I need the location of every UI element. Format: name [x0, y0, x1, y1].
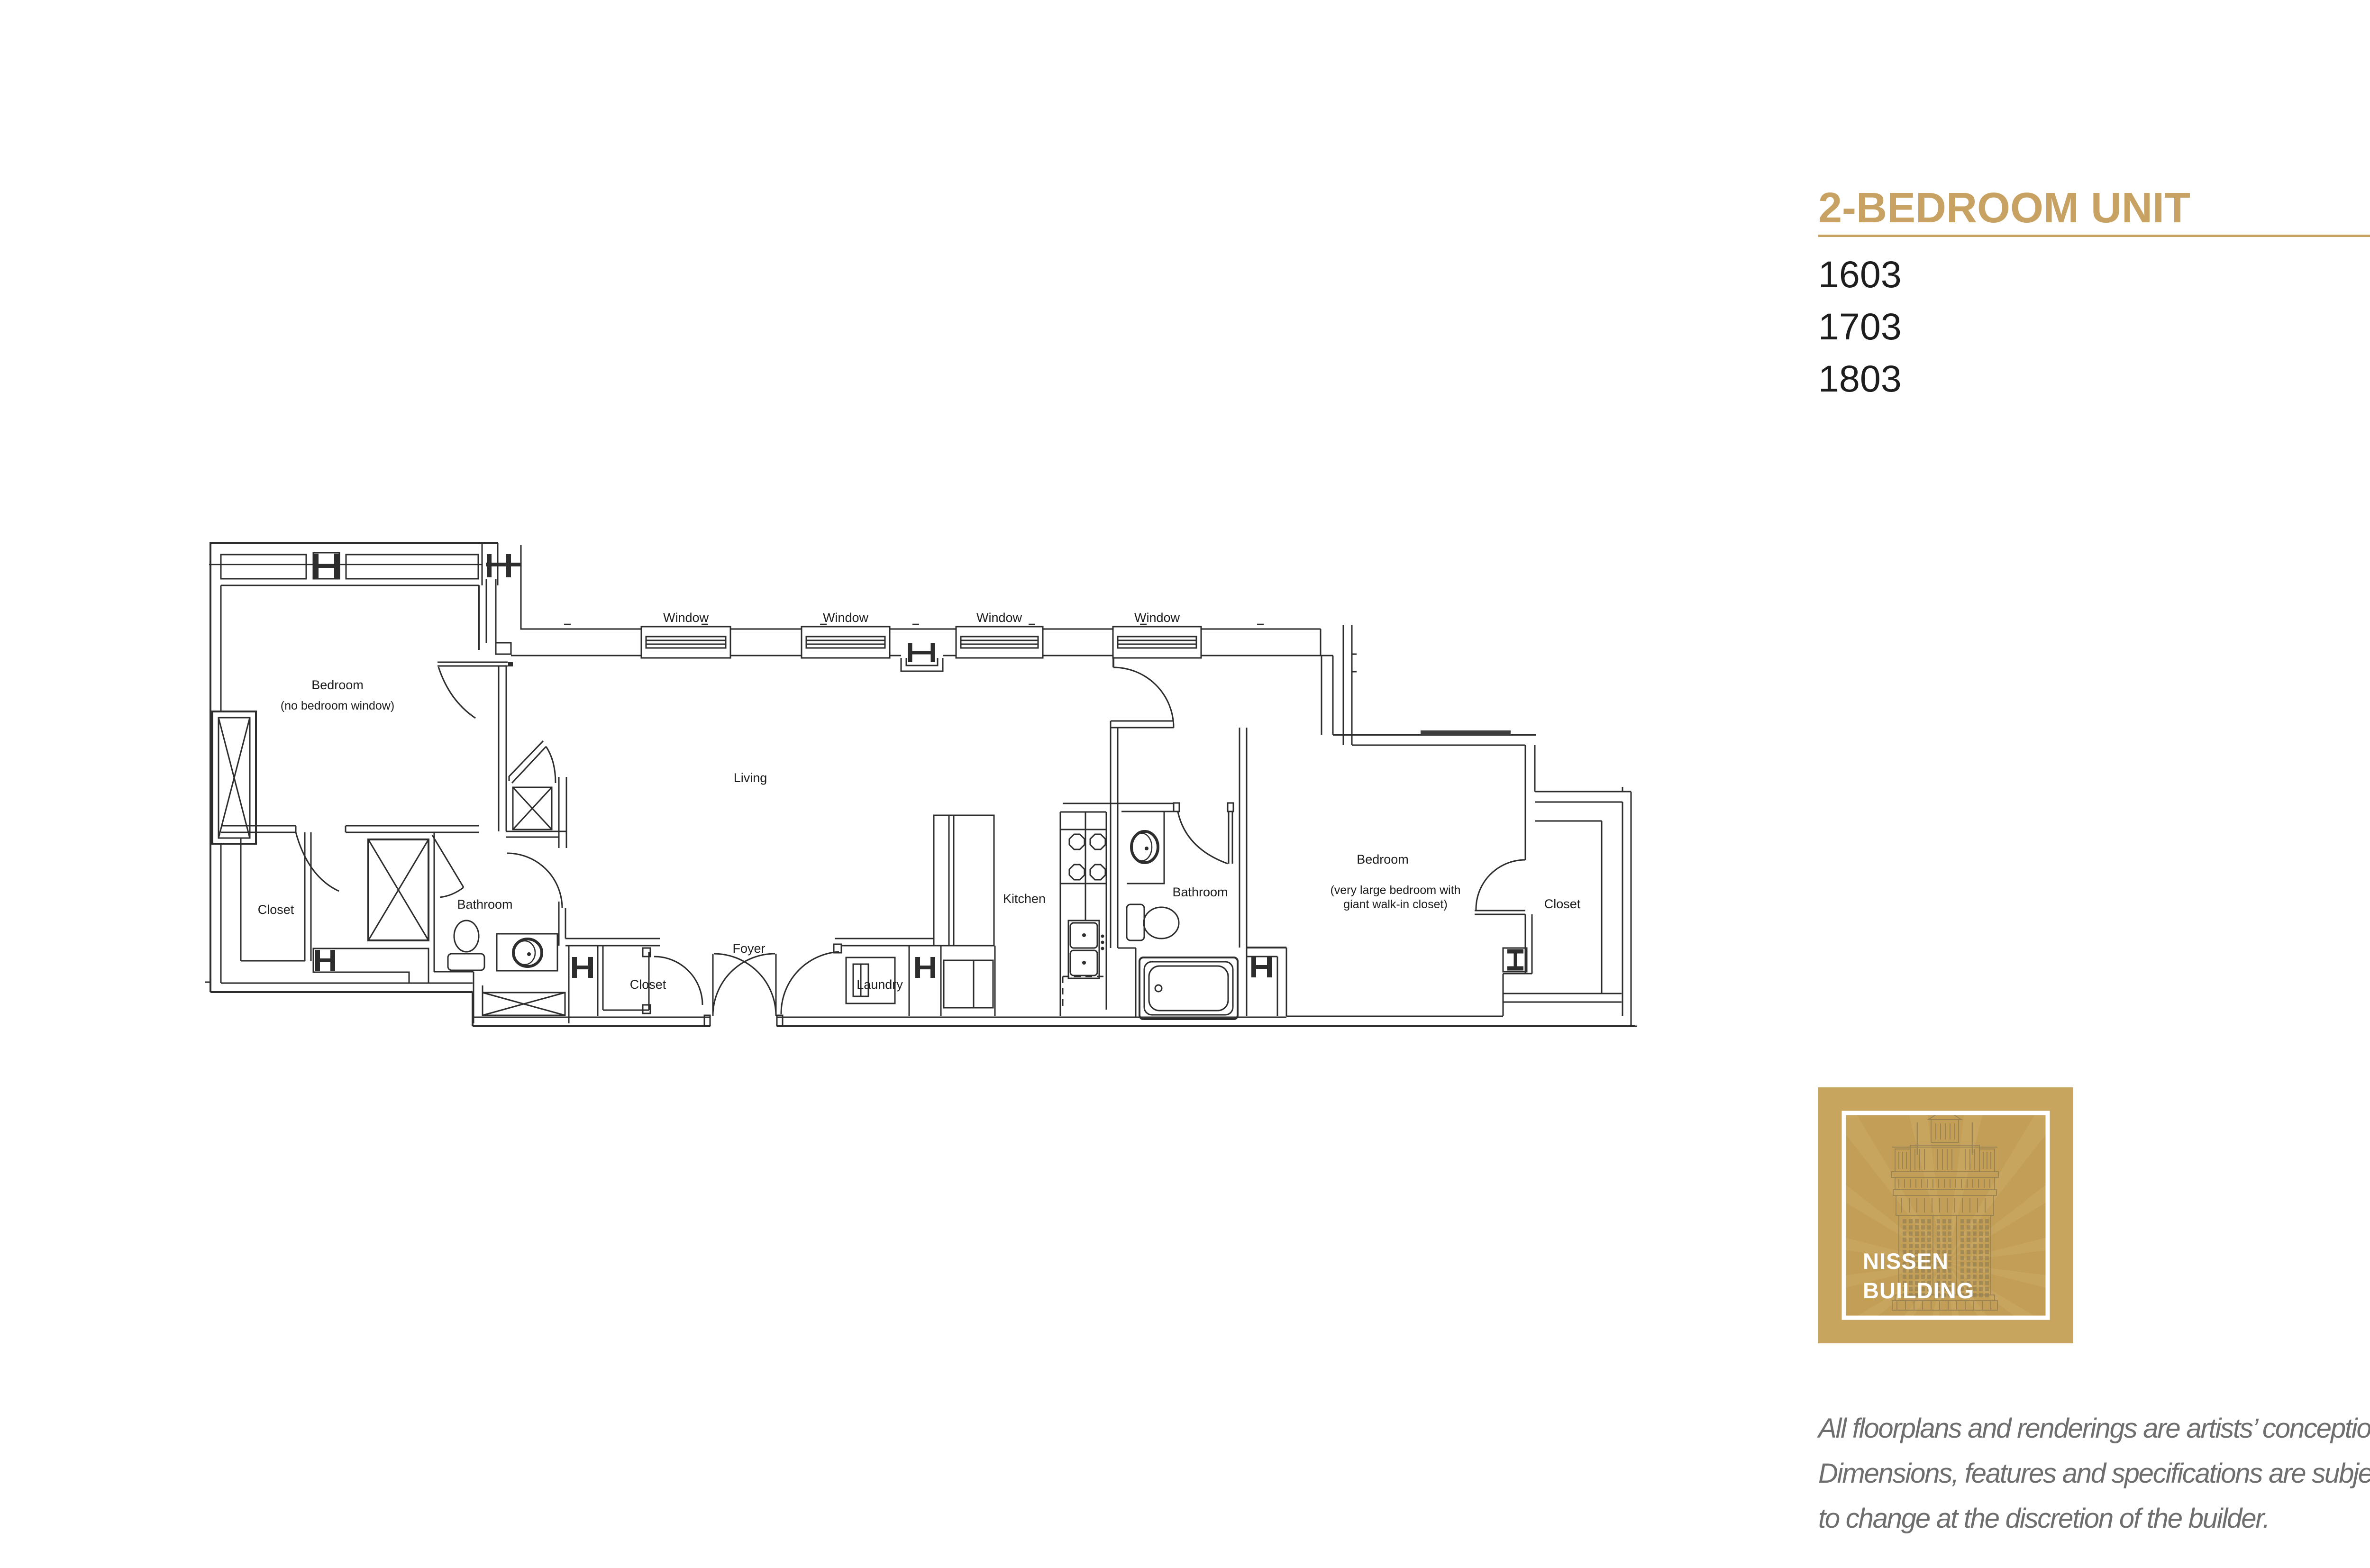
svg-text:Bedroom: Bedroom	[1357, 852, 1409, 866]
svg-text:Closet: Closet	[630, 977, 666, 992]
svg-text:Window: Window	[663, 611, 709, 625]
svg-text:Dimensions, features and speci: Dimensions, features and specifications …	[1818, 1458, 2370, 1489]
svg-text:2-BEDROOM UNIT: 2-BEDROOM UNIT	[1818, 184, 2190, 232]
svg-text:1603: 1603	[1818, 253, 1902, 295]
svg-text:to change at the discretion of: to change at the discretion of the build…	[1818, 1503, 2269, 1534]
svg-text:1803: 1803	[1818, 357, 1902, 400]
svg-text:NISSEN: NISSEN	[1863, 1249, 1949, 1274]
svg-text:All floorplans and renderings: All floorplans and renderings are artist…	[1817, 1413, 2370, 1444]
svg-text:Bathroom: Bathroom	[1172, 885, 1228, 899]
svg-text:(very large bedroom with: (very large bedroom with	[1330, 884, 1460, 897]
svg-text:giant walk-in closet): giant walk-in closet)	[1343, 898, 1448, 911]
svg-text:Kitchen: Kitchen	[1003, 892, 1046, 906]
svg-text:Living: Living	[734, 771, 767, 785]
svg-text:1703: 1703	[1818, 305, 1902, 347]
svg-text:Laundry: Laundry	[857, 977, 903, 992]
svg-text:Closet: Closet	[1544, 897, 1581, 911]
svg-text:Window: Window	[1134, 611, 1180, 625]
svg-text:(no bedroom window): (no bedroom window)	[281, 699, 394, 712]
svg-text:Window: Window	[976, 611, 1022, 625]
svg-text:Closet: Closet	[258, 903, 294, 917]
svg-text:Foyer: Foyer	[732, 941, 765, 956]
svg-text:Window: Window	[823, 611, 869, 625]
svg-text:Bathroom: Bathroom	[457, 897, 512, 912]
svg-text:BUILDING: BUILDING	[1863, 1278, 1974, 1303]
svg-text:Bedroom: Bedroom	[311, 678, 364, 692]
